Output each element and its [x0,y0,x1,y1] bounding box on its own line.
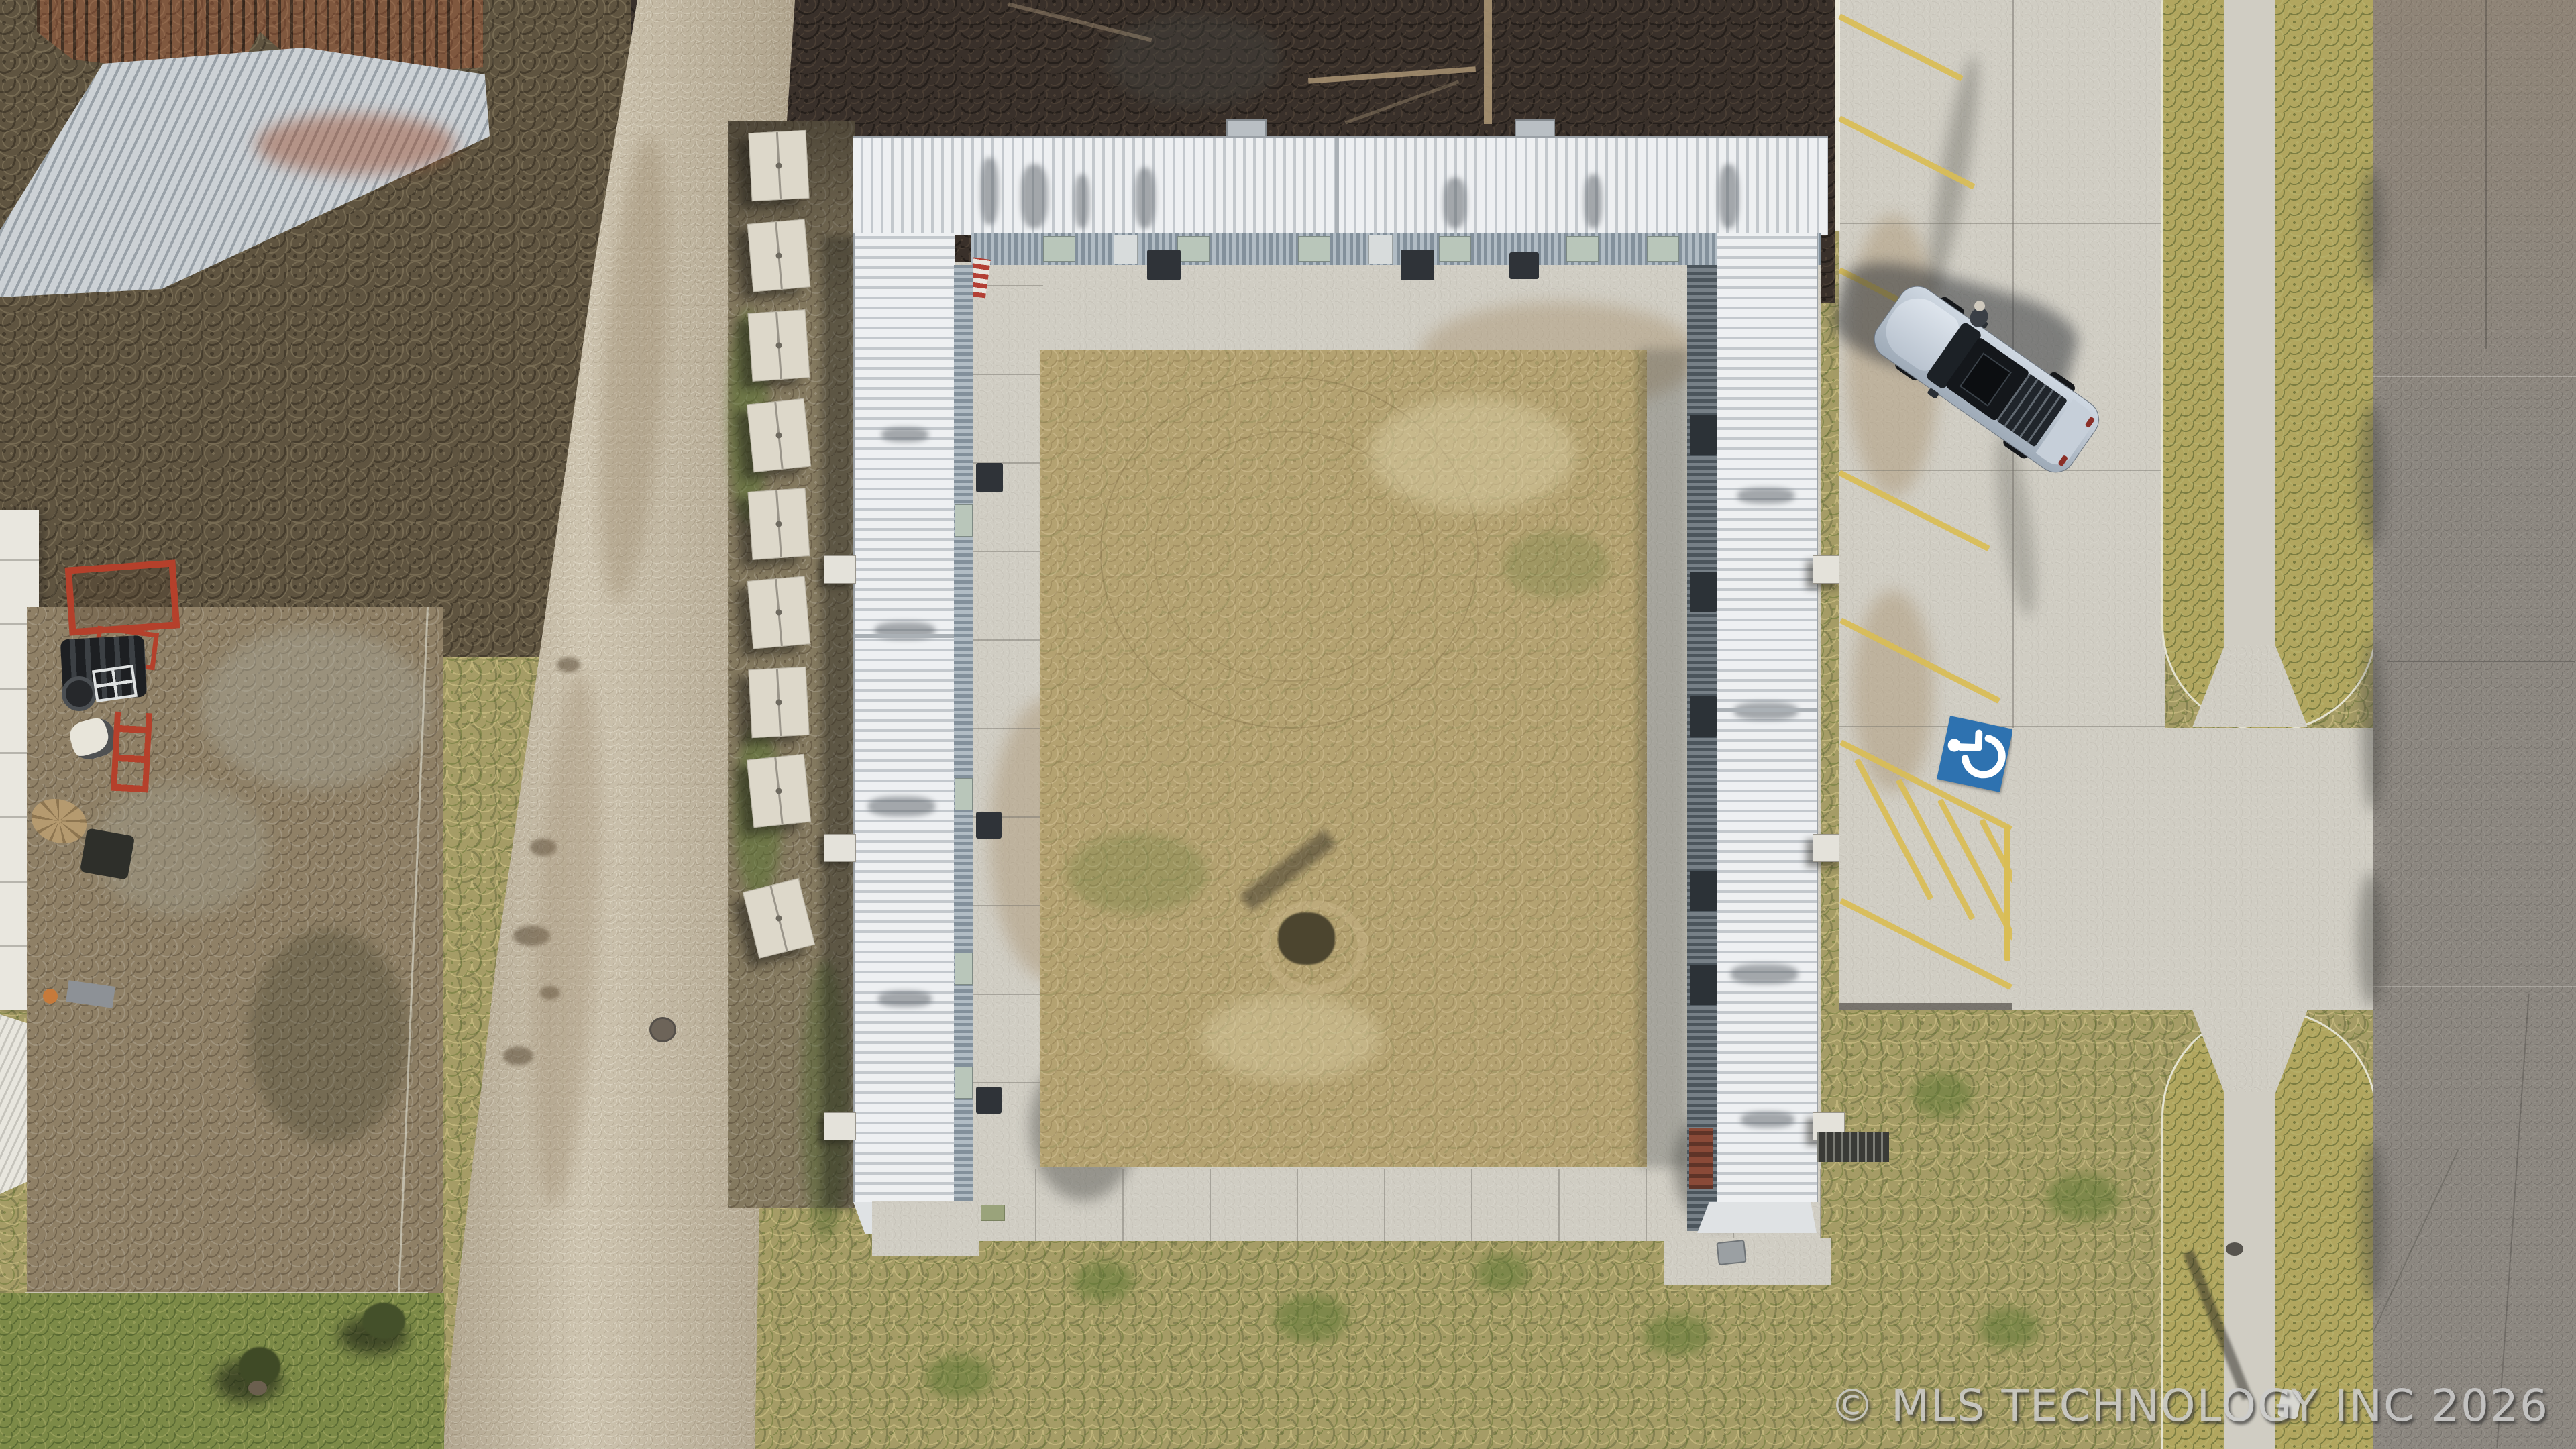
unit-door [1690,572,1717,612]
door-mat [1509,252,1539,279]
red-signage [1689,1128,1713,1189]
hvac-unit [824,834,856,862]
joint-line [1839,470,2165,471]
edge-stain [2360,168,2384,288]
walk-pad [872,1201,979,1256]
courtyard-dirt [1040,350,1647,1167]
window [955,504,973,537]
grass-tuft [1476,1254,1529,1291]
grass-tuft [1644,1315,1711,1355]
roof-stain [868,796,935,816]
courtyard-tree [1278,912,1335,965]
lawn [0,1293,444,1449]
road-crack [2373,986,2576,987]
edge-stain [2359,402,2385,550]
rock [248,1381,267,1395]
door-mat [1147,250,1181,280]
dark-machinery [80,828,135,880]
person [1969,301,1989,329]
manhole-cover [649,1017,676,1042]
storage-unit [747,754,811,828]
roof-seam [1717,708,1817,712]
person-head [1974,301,1985,311]
lot-stain [1853,590,1933,792]
grass-tuft [926,1355,993,1399]
vent-grate [1817,1132,1889,1162]
utility-pad [981,1205,1005,1221]
pale-patch [1201,994,1382,1081]
top-wing-wall [971,233,1821,265]
unit-door [1690,871,1717,911]
roof-stain [1741,1112,1794,1128]
right-wing-inner-shadow [1638,349,1688,1167]
accessible-parking-marking [1937,716,2013,792]
pothole [557,657,580,672]
roof-stain [981,158,998,225]
grass-tuft [1073,1261,1134,1301]
roof-stain [878,991,932,1007]
median-sidewalk [2224,0,2275,654]
bush [362,1303,405,1339]
roof-stain [1731,964,1798,984]
edge-stain [2361,637,2384,812]
road-tint [2373,0,2576,1449]
scrub-patch [248,929,409,1144]
tree-shadow [1107,13,1281,107]
window [1566,236,1599,262]
roof-stain [1737,488,1794,504]
gray-patch [201,627,429,788]
tire [62,676,97,711]
pole-base [2226,1242,2243,1256]
storage-unit [748,309,810,382]
roof-stain [881,427,928,442]
tree-shadow [1240,829,1337,911]
edge-stain [2360,1140,2385,1301]
joint-line [1839,223,2165,224]
green-patch [1067,833,1207,914]
road-crack [2373,376,2576,377]
access-aisle-edge [2004,826,2010,961]
curb-line [1835,0,1840,231]
roof-stain [1585,174,1602,228]
window [1177,236,1210,262]
left-wing-wall [954,265,973,1204]
green-patch [1503,531,1610,598]
grass-tuft [1912,1073,1972,1117]
door-mat [976,1087,1002,1114]
edge-stain [2357,872,2385,1006]
grass-tuft [2046,1174,2120,1221]
utility-box [1716,1240,1746,1265]
roof-seam [855,634,955,638]
window [955,953,973,985]
asphalt-road [2373,0,2576,1449]
storage-unit [748,667,809,738]
right-wing-endcap [1697,1202,1817,1233]
storage-unit [748,130,809,201]
driveway-apron [2012,728,2385,1010]
roof-stain [1135,168,1155,228]
grass-tuft [1275,1295,1348,1342]
window [1647,236,1679,262]
unit-door [1690,415,1717,455]
roof-stain [1021,164,1048,228]
grass-tuft [1979,1308,2039,1348]
utility-pole [1484,0,1492,124]
right-wing-roof [1717,233,1818,1202]
red-stand [111,712,152,793]
red-rack [65,559,180,635]
roof-stain [1719,164,1739,228]
orange-barrel [43,989,58,1004]
unit-door [1114,235,1138,264]
fenced-dirt-lot [27,607,443,1295]
road-crack [2387,661,2575,662]
watermark: © MLS TECHNOLOGY INC 2026 [1830,1380,2549,1432]
unit-door [1368,235,1393,264]
aerial-photo: © MLS TECHNOLOGY INC 2026 [0,0,2576,1449]
roof-stain [1444,178,1466,228]
unit-door [1690,696,1717,737]
hvac-unit [824,555,856,584]
roof-stain [1075,174,1089,228]
left-wing-roof [853,233,955,1202]
wheelchair-icon [1941,720,2008,787]
top-wing-roof [853,136,1828,235]
window [1043,236,1075,262]
storage-unit [747,219,811,292]
storage-unit [747,576,811,649]
door-mat [976,812,1002,839]
white-gate-panel [92,665,138,702]
window [1439,236,1471,262]
walk-pad [1664,1238,1831,1285]
storage-unit [748,488,810,560]
door-mat [976,463,1003,492]
right-wing-inner-wall [1687,265,1719,1231]
window [955,1067,973,1099]
door-mat [1401,250,1434,280]
pale-patch [1368,397,1576,511]
hvac-unit [824,1112,856,1140]
left-wing-shadow [822,236,855,1209]
road-edge-rough [2357,0,2390,1449]
window [1298,236,1330,262]
roof-seam [1335,138,1339,235]
pothole [503,1046,533,1065]
storage-unit [747,398,811,472]
window [955,778,973,810]
road-crack [2485,0,2487,349]
unit-door [1690,965,1717,1005]
rust-stain [255,114,456,174]
